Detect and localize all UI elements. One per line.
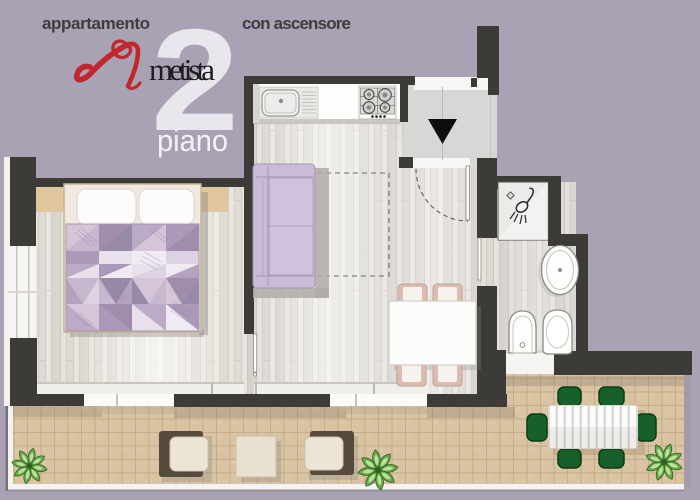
svg-text:appartamento: appartamento	[42, 14, 150, 33]
svg-text:con ascensore: con ascensore	[242, 14, 351, 33]
svg-text:metista: metista	[149, 52, 215, 87]
svg-text:piano: piano	[157, 123, 228, 158]
